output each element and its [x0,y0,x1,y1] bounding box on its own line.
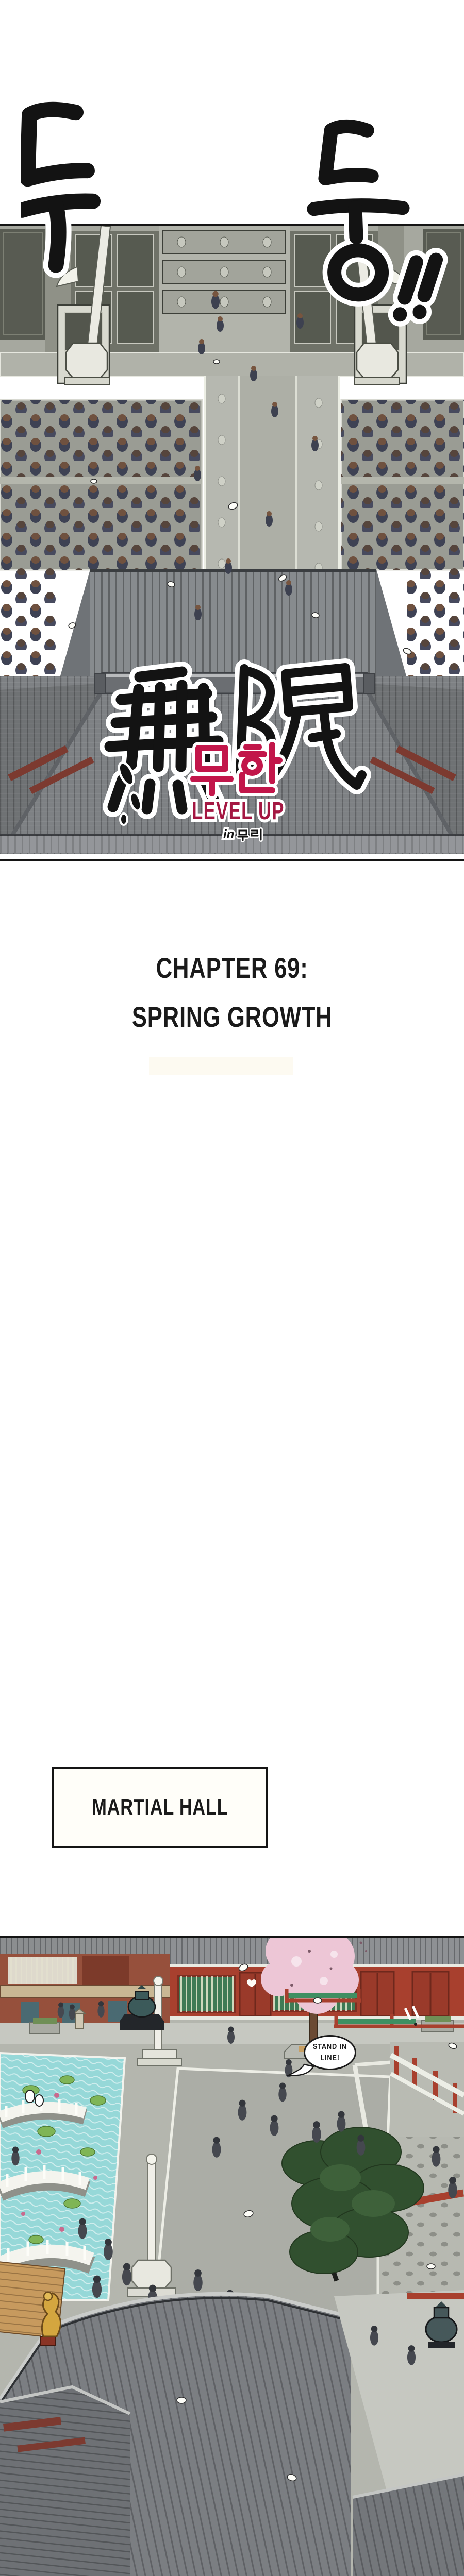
crowd-lower-left [0,569,59,680]
chapter-name: SPRING GROWTH [132,996,333,1038]
crowd-lower-right [407,569,464,680]
martial-hall-label: MARTIAL HALL [92,1791,228,1824]
crowd-left [0,400,202,570]
caption-box-martial-hall: MARTIAL HALL [52,1767,268,1848]
sfx-dung [310,125,440,316]
crowd-right [341,400,464,570]
stand-line2: LINE! [320,2053,340,2064]
chapter-title: CHAPTER 69: SPRING GROWTH [0,947,464,1038]
series-logo: LEVEL UP in [88,649,387,866]
panel-martial-hall-grounds [0,1936,464,2576]
foreground-roof [0,2290,464,2576]
logo-subtitle: LEVEL UP [192,796,285,824]
faded-highlight [149,1057,293,1075]
logo-tagline: in [223,827,261,841]
logo-hanja-mu [110,672,218,809]
webtoon-page: LEVEL UP in CHAPTER 69: SPRING GROWTH MA… [0,0,464,2576]
sfx-du [21,108,96,267]
chapter-number: CHAPTER 69: [156,947,308,989]
stand-line1: STAND IN [313,2041,347,2053]
speech-bubble-stand-in-line: STAND IN LINE! [304,2035,356,2070]
stone-lantern [75,2014,84,2028]
logo-tagline-in: in [223,827,234,841]
sfx-dudung [21,98,449,340]
